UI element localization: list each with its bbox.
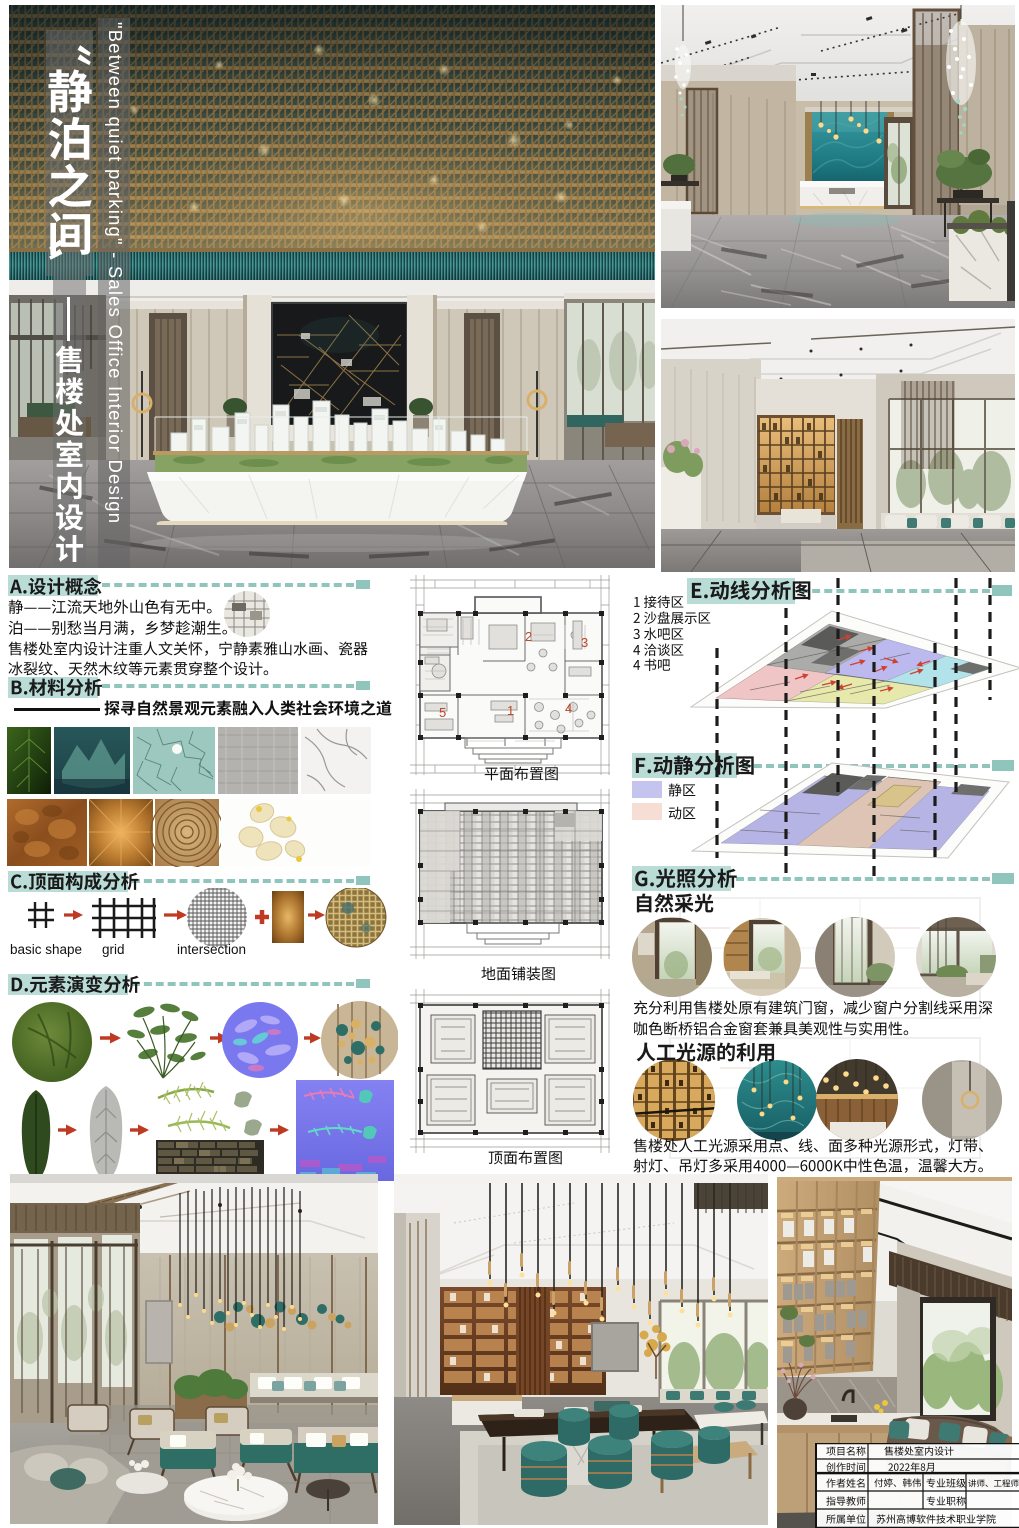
svg-text:2: 2 [525, 629, 532, 644]
svg-text:1: 1 [507, 703, 514, 718]
svg-text:3: 3 [581, 635, 588, 650]
svg-text:4: 4 [565, 701, 572, 716]
svg-text:5: 5 [439, 705, 446, 720]
